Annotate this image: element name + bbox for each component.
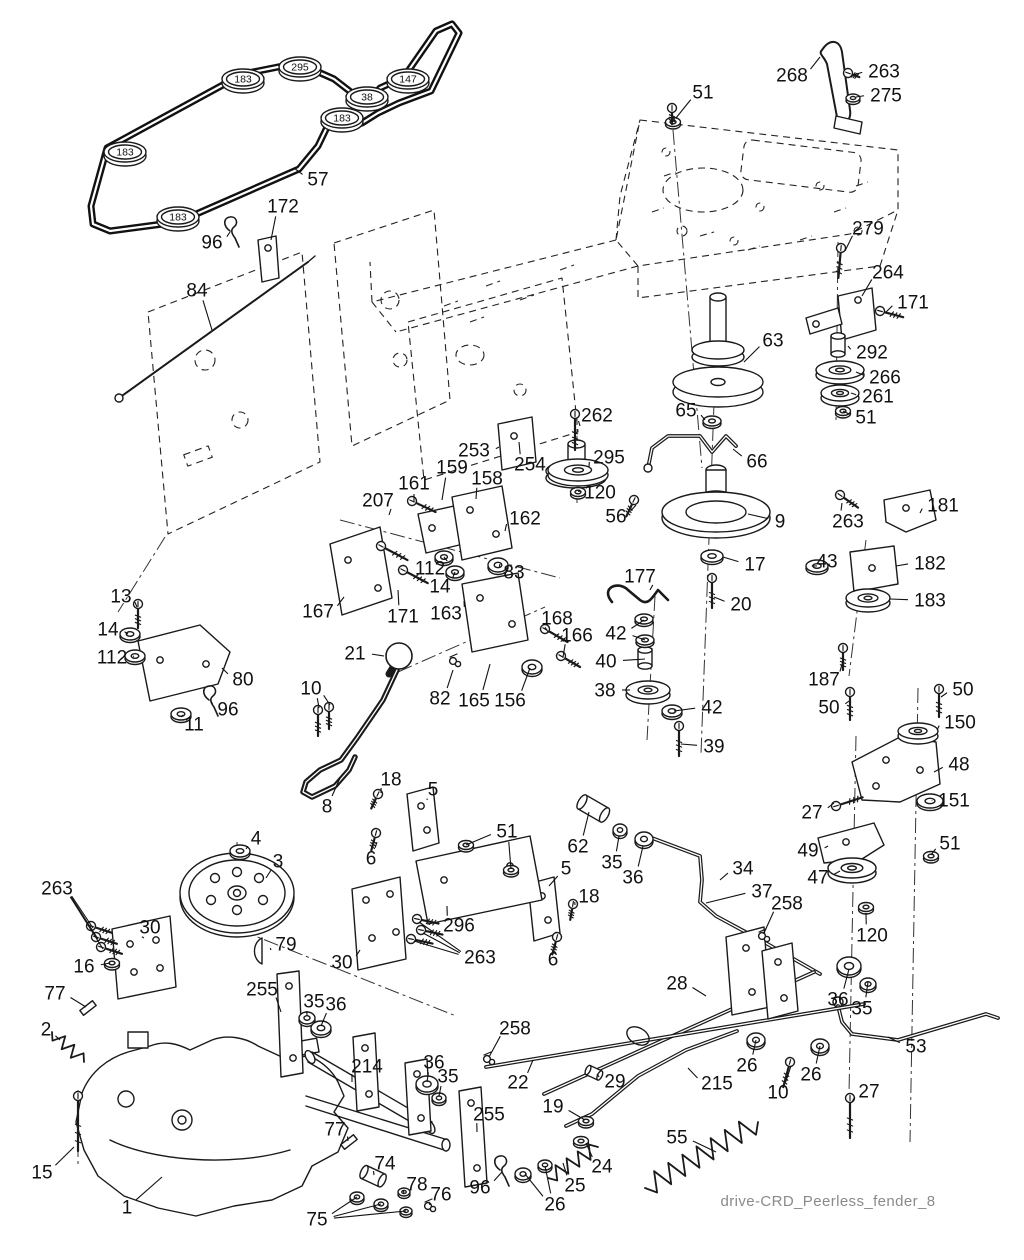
part-number: 29 [604, 1072, 625, 1093]
chassis-frame [370, 120, 898, 332]
part-number: 263 [464, 948, 496, 969]
callout-37: 37 [706, 882, 773, 904]
screw [134, 600, 143, 629]
callout-215: 215 [688, 1068, 733, 1095]
hairpin-cotter [204, 686, 218, 716]
part-number: 158 [471, 469, 503, 490]
part-number: 26 [544, 1195, 565, 1216]
callout-35: 35 [601, 836, 622, 874]
part-number: 275 [870, 86, 902, 107]
screw [834, 489, 861, 512]
part-number: 96 [469, 1178, 490, 1199]
part-number: 35 [851, 999, 872, 1020]
part-number: 84 [186, 281, 208, 302]
part-number: 37 [751, 882, 772, 903]
washer [400, 1207, 412, 1218]
washer [701, 550, 723, 565]
callout-5: 5 [549, 859, 571, 887]
part-number: 1 [122, 1198, 133, 1219]
part-number: 82 [429, 689, 450, 710]
side-panels [148, 210, 578, 534]
exploded-parts-diagram: 18318318329518338147 5796172845126826327… [0, 0, 1024, 1260]
part-number: 181 [927, 496, 959, 517]
part-number: 96 [201, 233, 222, 254]
screw [325, 703, 334, 730]
callout-27: 27 [801, 803, 834, 824]
part-number: 167 [302, 602, 334, 623]
nut [836, 407, 851, 419]
part-number: 6 [366, 849, 377, 870]
callout-27: 27 [852, 1082, 880, 1103]
callout-55: 55 [666, 1128, 716, 1153]
part-number: 47 [807, 868, 828, 889]
callout-165: 165 [458, 664, 490, 712]
part-number: 161 [398, 474, 430, 495]
coil-spring [645, 1122, 758, 1193]
screw [830, 793, 864, 812]
callout-292: 292 [848, 343, 888, 364]
hairpin-cotter [225, 217, 239, 247]
part-number: 51 [496, 822, 517, 843]
bracket-plate [258, 236, 279, 282]
part-number: 5 [561, 859, 572, 880]
part-number: 42 [701, 698, 722, 719]
part-number: 62 [567, 837, 588, 858]
part-number: 38 [594, 681, 615, 702]
callout-84: 84 [186, 281, 212, 331]
part-number: 40 [595, 652, 616, 673]
part-number: 255 [246, 980, 278, 1001]
callout-255: 255 [246, 980, 281, 1013]
svg-text:295: 295 [291, 62, 309, 74]
callout-268: 268 [776, 57, 820, 87]
bracket-plate [277, 971, 303, 1077]
callout-79: 79 [270, 935, 296, 956]
part-number: 42 [605, 624, 626, 645]
screw [555, 650, 582, 671]
part-number: 78 [406, 1175, 427, 1196]
part-number: 215 [701, 1074, 733, 1095]
callout-150: 150 [937, 713, 976, 734]
belt-badge: 38 [346, 87, 388, 111]
washer [120, 628, 140, 643]
bracket-plate [452, 486, 512, 560]
part-number: 264 [872, 263, 904, 284]
part-number: 50 [952, 680, 973, 701]
callout-120: 120 [578, 483, 616, 504]
callout-56: 56 [605, 505, 636, 528]
bracket-plate [850, 546, 898, 592]
part-number: 16 [73, 957, 94, 978]
part-number: 187 [808, 670, 840, 691]
callout-17: 17 [723, 555, 766, 576]
svg-text:38: 38 [361, 92, 373, 104]
part-number: 183 [914, 591, 946, 612]
part-number: 120 [584, 483, 616, 504]
callout-62: 62 [567, 812, 589, 858]
screw [314, 706, 323, 737]
washer [636, 635, 654, 648]
part-number: 268 [776, 66, 808, 87]
woodruff-key [254, 938, 262, 964]
part-number: 8 [322, 797, 333, 818]
svg-text:183: 183 [116, 147, 134, 159]
part-number: 24 [591, 1157, 613, 1178]
callout-4: 4 [246, 829, 262, 850]
callout-78: 78 [403, 1175, 428, 1196]
callout-163: 163 [430, 601, 464, 625]
bracket-plate [818, 823, 884, 863]
callout-38: 38 [594, 681, 630, 702]
spacer-cylinder [575, 793, 612, 823]
belt-keeper [821, 42, 862, 134]
part-number: 51 [939, 834, 960, 855]
pulley [828, 858, 876, 883]
part-number: 10 [300, 679, 321, 700]
nut [924, 852, 939, 864]
part-number: 35 [303, 992, 324, 1013]
part-number: 22 [507, 1073, 528, 1094]
callout-50: 50 [941, 680, 974, 701]
washer [515, 1168, 531, 1183]
part-number: 4 [251, 829, 262, 850]
callout-20: 20 [714, 595, 752, 616]
part-number: 36 [827, 990, 848, 1011]
part-number: 9 [775, 512, 786, 533]
screw [846, 688, 855, 721]
washer [662, 705, 682, 720]
part-number: 258 [499, 1019, 531, 1040]
callout-19: 19 [542, 1097, 585, 1121]
callout-51: 51 [676, 83, 714, 119]
part-number: 35 [601, 853, 622, 874]
part-number: 80 [232, 670, 253, 691]
bracket-plate [762, 943, 798, 1019]
bracket-plate [852, 736, 940, 802]
bracket-plate [138, 625, 230, 701]
part-number: 17 [744, 555, 765, 576]
part-number: 292 [856, 343, 888, 364]
callout-34: 34 [720, 859, 754, 881]
callout-35: 35 [437, 1067, 458, 1097]
bracket-plate [462, 573, 528, 652]
part-number: 11 [184, 715, 204, 736]
pulley [626, 681, 670, 704]
callout-50: 50 [818, 698, 849, 719]
part-number: 79 [275, 935, 296, 956]
part-number: 77 [44, 984, 65, 1005]
callout-279: 279 [845, 219, 884, 252]
belt-badge: 147 [387, 69, 429, 93]
washer [522, 660, 542, 677]
callout-76: 76 [429, 1185, 452, 1206]
nut [105, 959, 120, 971]
part-number: 35 [437, 1067, 458, 1088]
bracket-plate [352, 877, 406, 970]
part-number: 43 [816, 552, 837, 573]
clip [484, 1052, 495, 1065]
part-number: 177 [624, 567, 656, 588]
callout-22: 22 [507, 1060, 533, 1094]
part-number: 207 [362, 491, 394, 512]
transaxle [76, 1032, 450, 1216]
callout-2: 2 [41, 1020, 60, 1041]
callout-57: 57 [294, 168, 329, 191]
nut [859, 903, 874, 915]
part-number: 15 [31, 1163, 52, 1184]
screw [566, 899, 578, 921]
key-pin [80, 1001, 96, 1016]
svg-text:147: 147 [399, 74, 417, 86]
part-number: 3 [273, 852, 284, 873]
callout-36: 36 [622, 846, 643, 889]
bracket-plate [459, 1087, 487, 1187]
screw [675, 722, 684, 757]
support-rod [115, 256, 315, 402]
pulley [821, 385, 859, 406]
washer [613, 824, 627, 839]
part-number: 39 [703, 737, 724, 758]
belt-badge: 295 [279, 57, 321, 81]
screw [708, 574, 717, 609]
callout-120: 120 [856, 913, 888, 947]
part-number: 83 [503, 563, 524, 584]
part-number: 27 [858, 1082, 879, 1103]
callout-262: 262 [579, 406, 613, 427]
part-number: 50 [818, 698, 839, 719]
shift-knob [386, 643, 412, 669]
callout-182: 182 [896, 554, 946, 575]
screw [834, 243, 846, 278]
callout-63: 63 [744, 331, 784, 363]
callout-11: 11 [181, 715, 204, 736]
nut [579, 1117, 594, 1129]
part-number: 25 [564, 1176, 585, 1197]
part-number: 112 [97, 648, 127, 669]
callout-8: 8 [322, 778, 340, 818]
part-number: 48 [948, 755, 969, 776]
part-number: 171 [897, 293, 929, 314]
callout-258: 258 [489, 1019, 531, 1058]
clutch-pulley [662, 465, 770, 538]
callout-6: 6 [548, 942, 559, 971]
washer [125, 650, 145, 665]
pulley [846, 589, 890, 612]
callout-21: 21 [344, 644, 384, 665]
part-number: 20 [730, 595, 751, 616]
part-number: 63 [762, 331, 783, 352]
callout-43: 43 [812, 552, 838, 573]
part-number: 55 [666, 1128, 687, 1149]
part-number: 28 [666, 974, 687, 995]
part-number: 165 [458, 691, 490, 712]
part-number: 172 [267, 197, 299, 218]
callout-159: 159 [436, 458, 468, 501]
double-pulley-63 [673, 293, 763, 407]
callout-207: 207 [362, 491, 394, 516]
callout-30: 30 [139, 918, 160, 939]
part-number: 255 [473, 1105, 505, 1126]
callout-187: 187 [808, 661, 843, 691]
svg-text:183: 183 [169, 212, 187, 224]
callout-275: 275 [856, 86, 902, 107]
part-number: 26 [800, 1065, 821, 1086]
callout-18: 18 [380, 770, 401, 794]
washer [635, 832, 653, 849]
part-number: 57 [307, 170, 328, 191]
callout-161: 161 [398, 474, 430, 503]
callout-25: 25 [563, 1163, 586, 1197]
callout-15: 15 [31, 1147, 74, 1184]
part-number: 27 [801, 803, 822, 824]
part-number: 5 [428, 780, 439, 801]
callout-183: 183 [890, 591, 946, 612]
part-number: 74 [374, 1154, 396, 1175]
callout-80: 80 [222, 668, 254, 691]
spacer-cylinder [831, 333, 845, 357]
part-number: 263 [868, 62, 900, 83]
part-number: 182 [914, 554, 946, 575]
callout-53: 53 [888, 1037, 927, 1058]
part-number: 18 [578, 887, 599, 908]
part-number: 263 [832, 512, 864, 533]
bracket-plate [416, 836, 542, 924]
part-number: 266 [869, 368, 901, 389]
callout-74: 74 [374, 1154, 396, 1176]
part-number: 21 [344, 644, 365, 665]
part-number: 36 [622, 868, 643, 889]
callout-172: 172 [267, 197, 299, 241]
clip [450, 654, 461, 667]
part-number: 49 [797, 841, 818, 862]
belt-badge: 183 [321, 108, 363, 132]
belt-guide [608, 586, 668, 603]
part-number: 19 [542, 1097, 563, 1118]
part-number: 75 [306, 1210, 327, 1231]
part-number: 159 [436, 458, 468, 479]
part-number: 263 [41, 879, 73, 900]
part-number: 36 [325, 995, 346, 1016]
part-number: 120 [856, 926, 888, 947]
part-number: 76 [430, 1185, 451, 1206]
nut [574, 1137, 589, 1149]
callout-166: 166 [561, 626, 593, 658]
part-number: 30 [139, 918, 160, 939]
callout-26: 26 [800, 1046, 821, 1086]
part-number: 2 [41, 1020, 52, 1041]
part-number: 261 [862, 387, 894, 408]
part-number: 13 [110, 587, 131, 608]
part-number: 162 [509, 509, 541, 530]
callout-30: 30 [331, 950, 360, 974]
part-number: 66 [746, 452, 767, 473]
part-number: 295 [593, 448, 625, 469]
callout-28: 28 [666, 974, 706, 997]
callout-77: 77 [44, 984, 86, 1008]
part-number: 51 [692, 83, 713, 104]
part-number: 10 [767, 1083, 788, 1104]
part-number: 262 [581, 406, 613, 427]
belt-badge: 183 [157, 207, 199, 231]
part-number: 51 [855, 408, 876, 429]
belt-badge: 183 [222, 69, 264, 93]
part-number: 34 [732, 859, 754, 880]
callout-167: 167 [302, 597, 344, 623]
washer [350, 1192, 364, 1205]
part-number: 171 [387, 607, 419, 628]
part-number: 30 [331, 953, 352, 974]
part-number: 96 [217, 700, 238, 721]
callout-177: 177 [624, 567, 656, 591]
part-number: 279 [852, 219, 884, 240]
callout-18: 18 [575, 887, 600, 908]
callout-77: 77 [324, 1120, 348, 1142]
part-number: 26 [736, 1056, 757, 1077]
svg-text:183: 183 [333, 113, 351, 125]
part-number: 150 [944, 713, 976, 734]
part-number: 14 [97, 620, 119, 641]
part-number: 14 [429, 577, 451, 598]
callout-162: 162 [505, 509, 541, 532]
part-number: 156 [494, 691, 526, 712]
callout-83: 83 [499, 563, 524, 584]
belt-badge: 183 [104, 142, 146, 166]
screw [839, 644, 848, 671]
washer [837, 957, 861, 978]
callout-26: 26 [736, 1040, 757, 1077]
washer [846, 94, 860, 105]
figure-caption: drive-CRD_Peerless_fender_8 [720, 1193, 935, 1210]
callout-66: 66 [733, 449, 768, 473]
part-number: 6 [548, 950, 559, 971]
part-number: 65 [675, 401, 696, 422]
callout-295: 295 [589, 448, 625, 469]
callout-35: 35 [303, 992, 324, 1017]
part-number: 258 [771, 894, 803, 915]
hairpin-cotter [495, 1156, 509, 1186]
screw [935, 685, 944, 718]
part-number: 18 [380, 770, 401, 791]
callout-151: 151 [932, 791, 970, 812]
svg-text:183: 183 [234, 74, 252, 86]
callout-82: 82 [429, 670, 453, 710]
callout-263: 263 [853, 62, 900, 83]
bracket-plate [838, 288, 876, 340]
spacer-cylinder [638, 647, 652, 669]
washer [311, 1021, 331, 1038]
callout-5: 5 [427, 780, 438, 801]
part-number: 214 [351, 1057, 383, 1078]
part-number: 296 [443, 916, 475, 937]
part-number: 166 [561, 626, 593, 647]
part-number: 53 [905, 1037, 926, 1058]
washer [703, 416, 721, 429]
part-number: 56 [605, 507, 626, 528]
part-number: 77 [324, 1120, 345, 1141]
part-number: 151 [938, 791, 970, 812]
part-number: 254 [514, 455, 546, 476]
callout-39: 39 [681, 737, 725, 758]
callout-171: 171 [886, 293, 929, 314]
callout-96: 96 [201, 232, 230, 254]
part-number: 163 [430, 604, 462, 625]
bracket-plate [330, 527, 392, 615]
pulley [898, 723, 938, 744]
